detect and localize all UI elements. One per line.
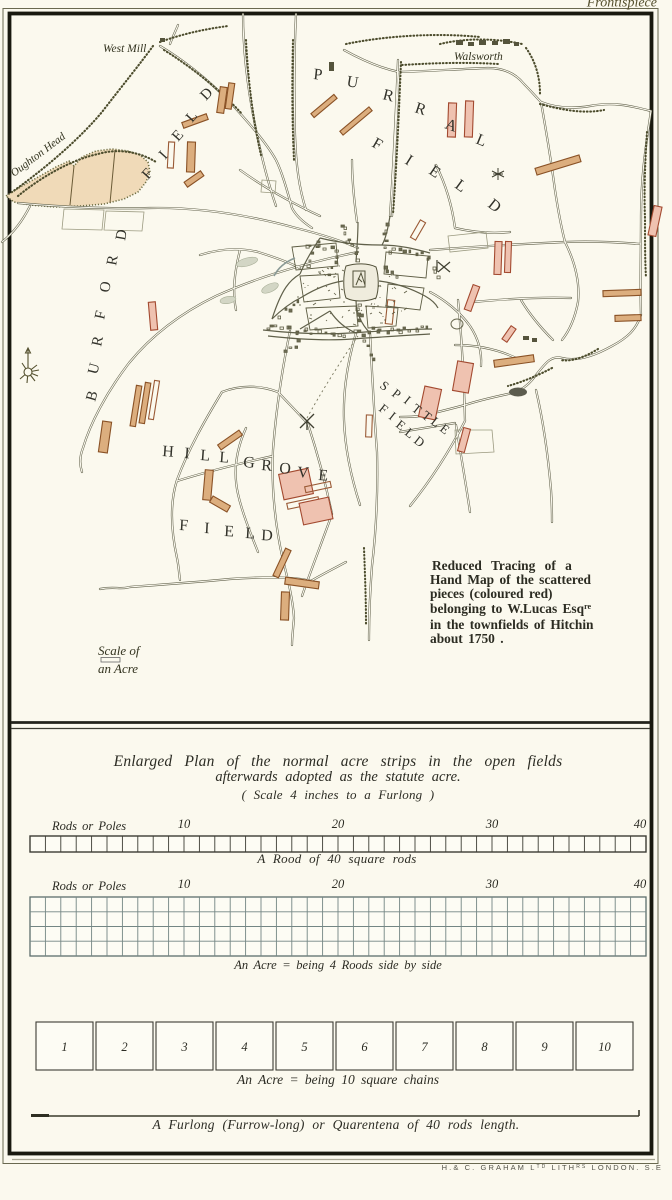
svg-text:pieces (coloured red): pieces (coloured red) (430, 586, 553, 601)
svg-text:P: P (313, 66, 324, 84)
svg-text:Scale of: Scale of (98, 643, 142, 658)
svg-text:Frontispiece: Frontispiece (586, 0, 657, 11)
svg-text:L: L (219, 449, 230, 467)
svg-text:5: 5 (301, 1040, 307, 1054)
svg-text:8: 8 (481, 1040, 488, 1054)
svg-text:40: 40 (634, 877, 647, 891)
svg-text:A Furlong (Furrow-long) or Qua: A Furlong (Furrow-long) or Quarentena of… (152, 1117, 520, 1132)
svg-text:afterwards adopted as the stat: afterwards adopted as the statute acre. (215, 769, 460, 785)
svg-text:H: H (162, 443, 175, 461)
svg-text:4: 4 (241, 1040, 247, 1054)
svg-text:Hand Map of the scattered: Hand Map of the scattered (430, 572, 592, 587)
svg-text:West Mill: West Mill (103, 43, 146, 55)
svg-text:40: 40 (634, 817, 647, 831)
svg-text:D: D (261, 527, 273, 545)
svg-text:A Rood of 40 square rods: A Rood of 40 square rods (256, 851, 416, 866)
svg-text:Enlarged Plan of the normal ac: Enlarged Plan of the normal acre strips … (113, 753, 563, 770)
svg-text:2: 2 (121, 1040, 127, 1054)
svg-text:6: 6 (361, 1040, 368, 1054)
svg-text:20: 20 (332, 817, 345, 831)
svg-text:E: E (318, 467, 329, 485)
svg-text:9: 9 (541, 1040, 548, 1054)
svg-text:belonging to W.Lucas Esqre: belonging to W.Lucas Esqre (430, 601, 592, 616)
svg-text:V: V (297, 464, 310, 482)
svg-text:20: 20 (332, 877, 345, 891)
svg-text:10: 10 (178, 877, 191, 891)
svg-text:1: 1 (61, 1040, 67, 1054)
svg-text:Rods or Poles: Rods or Poles (51, 879, 126, 893)
svg-text:30: 30 (485, 817, 499, 831)
svg-text:An Acre = being 10 square chai: An Acre = being 10 square chains (236, 1072, 439, 1087)
svg-text:H.& C. GRAHAM LTD LITHRS LONDO: H.& C. GRAHAM LTD LITHRS LONDON. S.E (442, 1163, 663, 1172)
svg-text:7: 7 (421, 1040, 428, 1054)
svg-text:30: 30 (485, 877, 499, 891)
svg-text:in the townfields of Hitchin: in the townfields of Hitchin (430, 617, 594, 632)
svg-text:E: E (224, 523, 235, 540)
svg-text:an Acre: an Acre (98, 661, 138, 676)
svg-text:G: G (243, 454, 256, 472)
svg-text:F: F (179, 517, 189, 534)
svg-text:Walsworth: Walsworth (454, 51, 503, 63)
svg-text:O: O (279, 460, 292, 478)
svg-text:about 1750 .: about 1750 . (430, 631, 504, 646)
svg-text:R: R (261, 457, 273, 475)
svg-text:( Scale 4 inches to a Furlong: ( Scale 4 inches to a Furlong ) (242, 787, 435, 802)
svg-text:3: 3 (180, 1040, 187, 1054)
svg-text:10: 10 (178, 817, 191, 831)
svg-text:Reduced Tracing of a: Reduced Tracing of a (432, 558, 572, 573)
svg-text:L: L (245, 525, 256, 542)
svg-text:I: I (204, 520, 210, 537)
svg-text:An Acre = being 4 Roods side b: An Acre = being 4 Roods side by side (233, 958, 442, 972)
svg-text:L: L (200, 447, 211, 465)
svg-text:Rods or Poles: Rods or Poles (51, 819, 126, 833)
svg-text:10: 10 (598, 1040, 611, 1054)
